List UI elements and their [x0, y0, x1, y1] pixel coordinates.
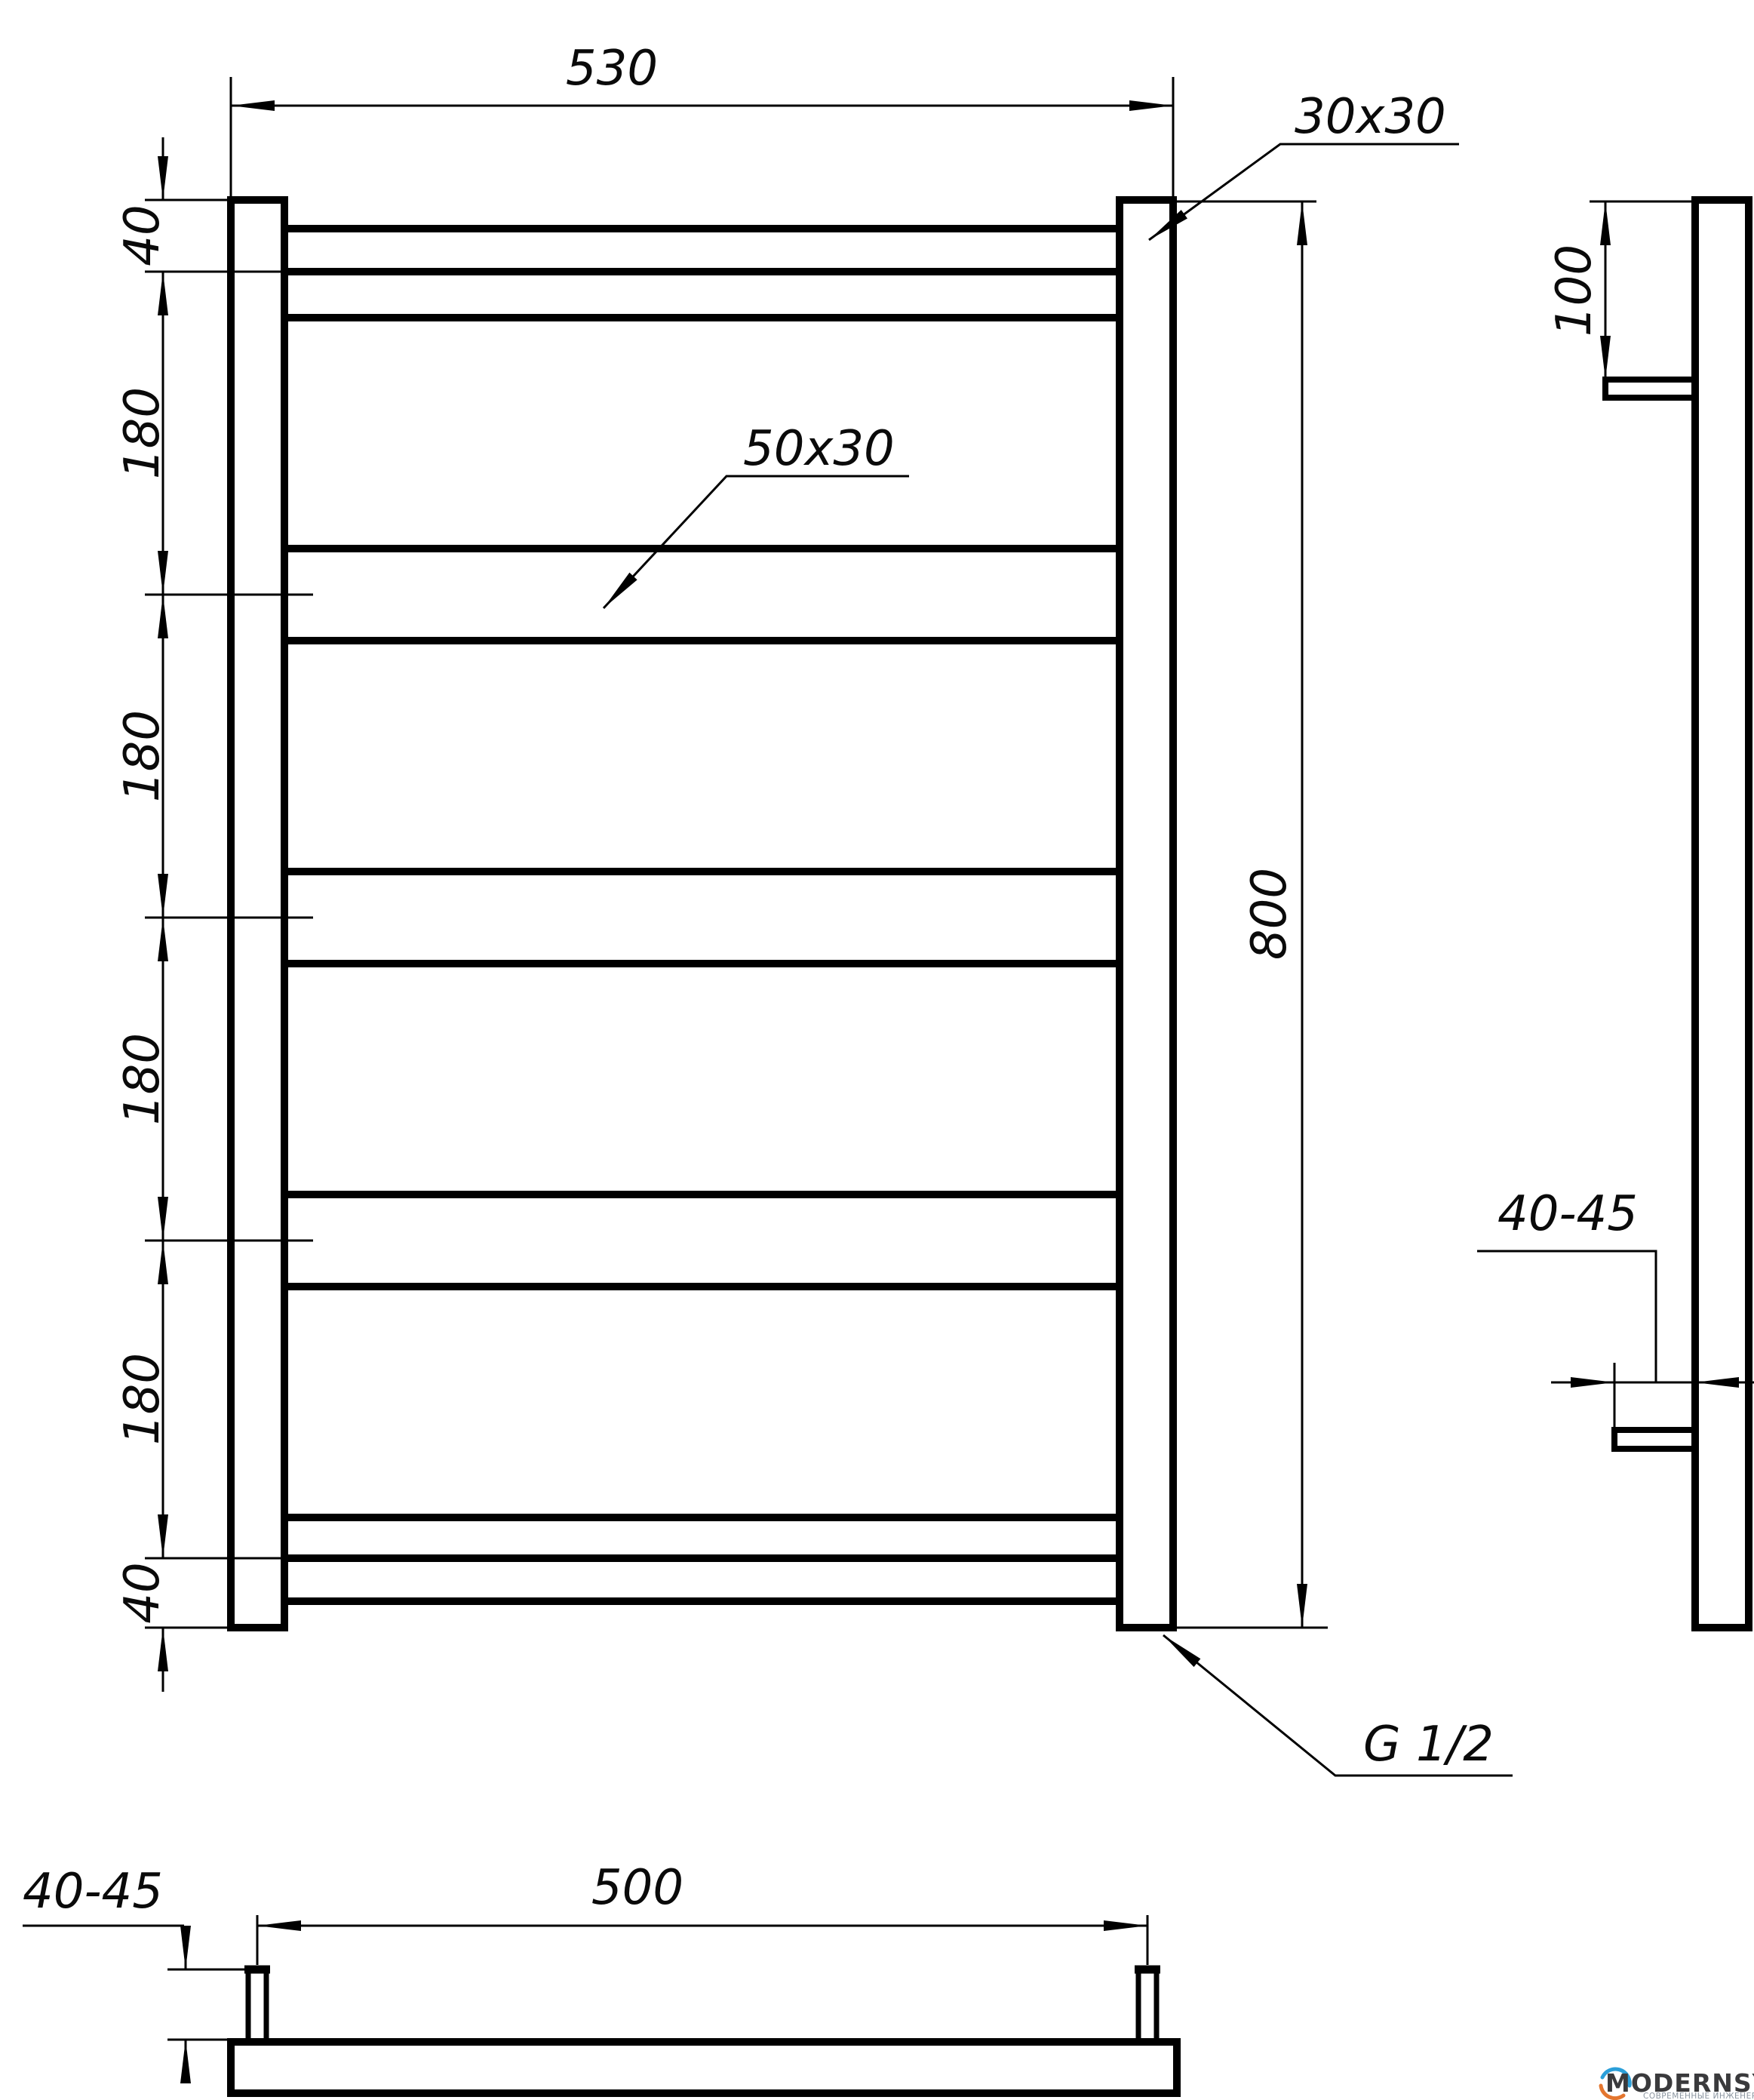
rung-2-outline [284, 641, 1120, 872]
bottom-rail-outline [231, 2042, 1177, 2093]
top-crossbar-outline [284, 229, 1120, 272]
dim-label-pitch-2: 180 [115, 710, 170, 802]
side-top-bracket [1605, 380, 1695, 398]
dim-label-pitch-3: 180 [115, 1033, 170, 1125]
dim-bracket-offset-100: 100 [1547, 201, 1697, 380]
callout-label-rung-profile: 50x30 [743, 421, 895, 477]
bottom-view [231, 1969, 1177, 2093]
callout-post-profile: 30x30 [1149, 89, 1459, 240]
bottom-left-pin [248, 1971, 266, 2042]
callout-label-thread: G 1/2 [1363, 1717, 1494, 1773]
side-view [1605, 200, 1749, 1628]
dim-wall-distance: 40-45 [1477, 1186, 1754, 1430]
rung-4-outline [284, 1287, 1120, 1517]
callout-label-post-profile: 30x30 [1295, 89, 1446, 145]
callout-rung-profile: 50x30 [604, 421, 909, 608]
dim-bracket-spacing-500: 500 [257, 1860, 1147, 1965]
rung-1-outline [284, 318, 1120, 549]
dim-label-pin-height: 40-45 [23, 1864, 163, 1920]
dim-label-wall-distance: 40-45 [1498, 1186, 1638, 1242]
dim-label-pitch-4: 180 [115, 1353, 170, 1445]
dim-label-pitch-1: 180 [115, 387, 170, 479]
drawing-sheet: 530 40 180 180 180 180 40 800 30x30 [0, 0, 1754, 2100]
right-post-outline [1120, 200, 1173, 1628]
dim-label-bracket-spacing: 500 [591, 1860, 683, 1916]
dim-height-800: 800 [1175, 201, 1328, 1628]
rung-3-outline [284, 964, 1120, 1195]
bottom-right-pin [1138, 1971, 1157, 2042]
dim-label-bracket-offset: 100 [1547, 244, 1602, 337]
dim-pin-height: 40-45 [23, 1864, 251, 2081]
dim-width-530: 530 [231, 41, 1173, 198]
dim-label-bottom-gap: 40 [115, 1562, 170, 1623]
technical-drawing: 530 40 180 180 180 180 40 800 30x30 [0, 0, 1754, 2100]
side-bottom-bracket [1614, 1430, 1695, 1449]
dim-label-height: 800 [1242, 868, 1298, 960]
logo: MODERNSYS СОВРЕМЕННЫЕ ИНЖЕНЕРНЫЕ СИСТЕМЫ [1601, 2068, 1754, 2100]
left-post-outline [231, 200, 284, 1628]
bottom-crossbar-outline [284, 1558, 1120, 1601]
side-post-outline [1695, 200, 1749, 1628]
callout-thread: G 1/2 [1163, 1635, 1513, 1776]
dim-label-top-gap: 40 [115, 204, 170, 266]
front-view [231, 200, 1173, 1628]
logo-tagline-text: СОВРЕМЕННЫЕ ИНЖЕНЕРНЫЕ СИСТЕМЫ [1643, 2092, 1754, 2100]
dim-label-width: 530 [566, 41, 658, 97]
